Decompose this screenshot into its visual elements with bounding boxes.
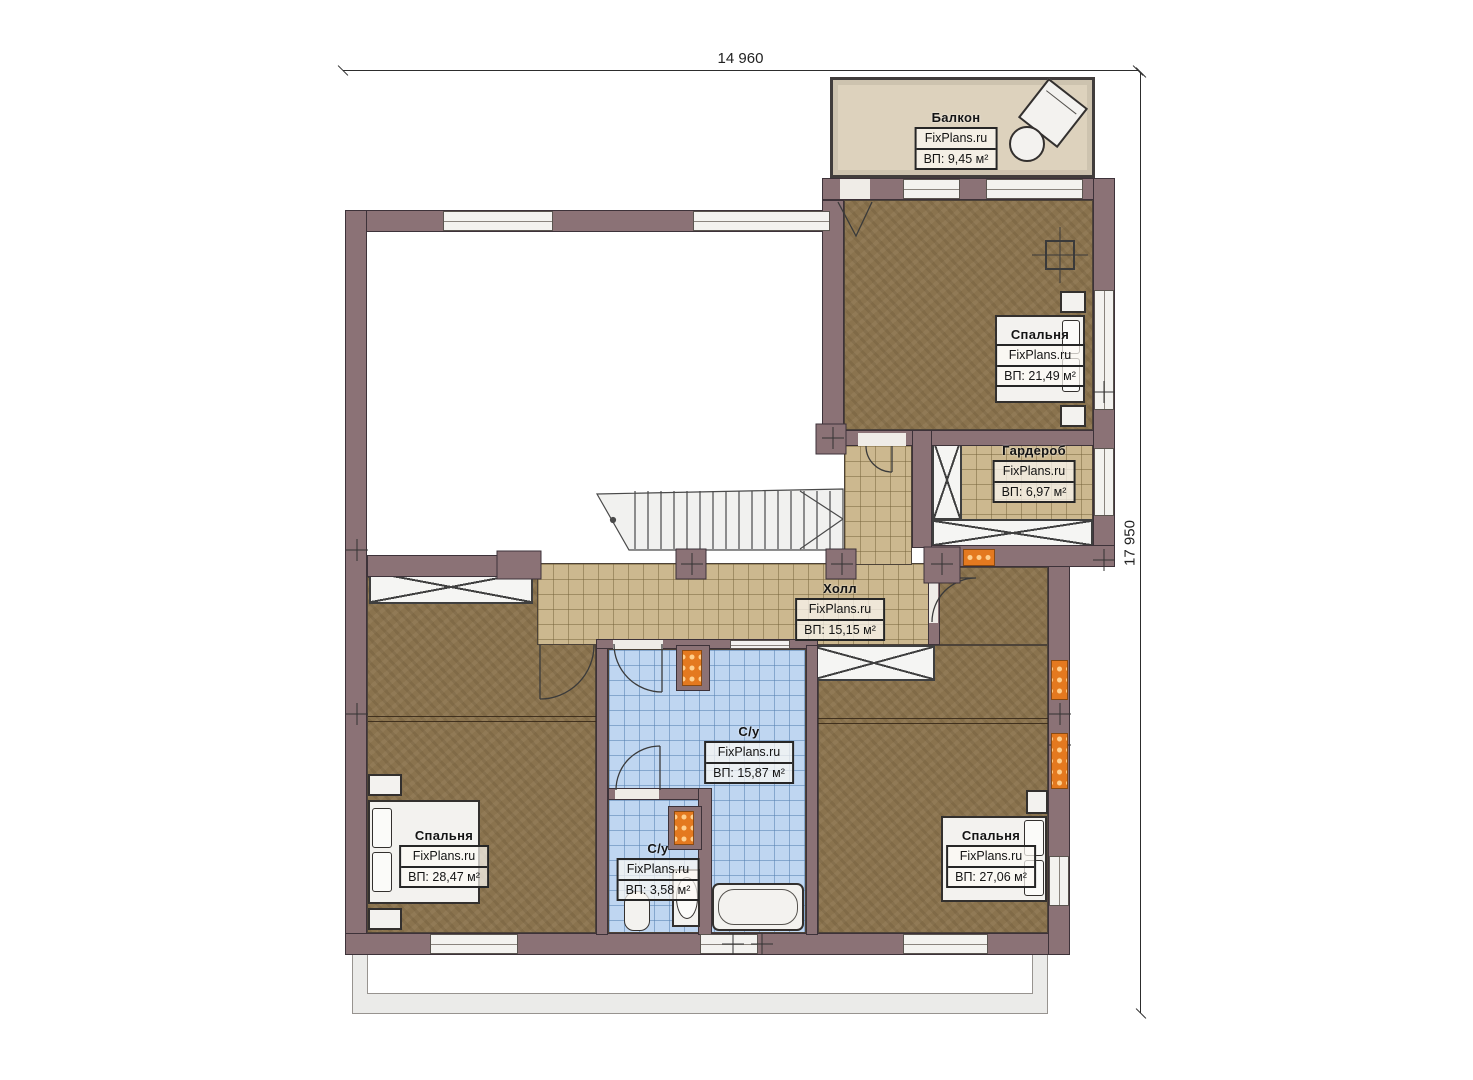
wall-segment [367,555,537,577]
interior-sill [730,640,790,649]
nightstand [1026,790,1048,814]
window [1094,448,1114,516]
stair-treads [635,491,830,549]
room-area: ВП: 15,15 м² [797,621,883,640]
dimension-label-right: 17 950 [1122,514,1139,572]
balcony-chair [1009,126,1045,162]
dimension-label-top: 14 960 [712,50,770,67]
room-area: ВП: 6,97 м² [995,483,1074,502]
brand-watermark: FixPlans.ru [995,462,1074,483]
door-opening [840,179,870,199]
room-name: Спальня [1011,327,1069,342]
hall-connector-floor [844,430,912,565]
door-opening [929,578,938,623]
radiator [1051,733,1068,789]
room-area: ВП: 28,47 м² [401,868,487,887]
floor-plan-canvas: 14 960 17 950 [0,0,1473,1080]
dimension-line-right: 17 950 [1140,73,1141,1013]
window [693,211,830,231]
nightstand [1060,291,1086,313]
dimension-tick [1136,1008,1147,1019]
radiator [674,811,694,845]
room-info-box: FixPlans.ru ВП: 27,06 м² [946,845,1036,888]
wall-segment [912,430,932,548]
door-opening [613,640,663,649]
brand-watermark: FixPlans.ru [619,860,698,881]
window [430,934,518,954]
room-info-box: FixPlans.ru ВП: 15,87 м² [704,741,794,784]
room-info-box: FixPlans.ru ВП: 15,15 м² [795,598,885,641]
room-area: ВП: 15,87 м² [706,764,792,783]
dimension-tick [1136,67,1147,78]
room-area: ВП: 3,58 м² [619,881,698,900]
door-opening [858,433,906,446]
room-area: ВП: 9,45 м² [917,150,996,169]
room-label-bedroom-tr: Спальня FixPlans.ru ВП: 21,49 м² [995,327,1085,387]
brand-watermark: FixPlans.ru [997,346,1083,367]
radiator [1051,660,1068,700]
room-name: Спальня [962,828,1020,843]
room-name: С/у [738,724,759,739]
ceiling-break-line [818,718,1048,724]
pillow [372,852,392,892]
dimension-line-top: 14 960 [343,70,1138,71]
bathtub [712,883,804,931]
room-info-box: FixPlans.ru ВП: 9,45 м² [915,127,998,170]
radiator [682,650,702,686]
bedroom-br-floor-upper [938,567,1048,645]
closet [932,440,962,520]
room-label-hall: Холл FixPlans.ru ВП: 15,15 м² [795,581,885,641]
room-name: Балкон [932,110,981,125]
brand-watermark: FixPlans.ru [797,600,883,621]
room-label-balcony: Балкон FixPlans.ru ВП: 9,45 м² [915,110,998,170]
wall-segment [806,645,818,935]
nightstand [368,908,402,930]
room-area: ВП: 27,06 м² [948,868,1034,887]
window [903,934,988,954]
window [986,179,1083,199]
staircase [597,489,843,550]
room-label-bathroom-main: С/у FixPlans.ru ВП: 15,87 м² [704,724,794,784]
room-info-box: FixPlans.ru ВП: 28,47 м² [399,845,489,888]
nightstand [1060,405,1086,427]
window [903,179,960,199]
nightstand [368,774,402,796]
brand-watermark: FixPlans.ru [401,847,487,868]
wall-segment [345,210,367,955]
room-name: Гардероб [1002,443,1066,458]
room-area: ВП: 21,49 м² [997,367,1083,386]
room-label-bedroom-bl: Спальня FixPlans.ru ВП: 28,47 м² [399,828,489,888]
window [1049,856,1069,906]
window [1094,290,1114,410]
room-info-box: FixPlans.ru ВП: 21,49 м² [995,344,1085,387]
radiator [963,549,995,566]
room-name: Спальня [415,828,473,843]
brand-watermark: FixPlans.ru [917,129,996,150]
pillow [372,808,392,848]
brand-watermark: FixPlans.ru [948,847,1034,868]
room-label-wardrobe: Гардероб FixPlans.ru ВП: 6,97 м² [993,443,1076,503]
closet [813,645,935,681]
wall-segment [822,200,844,426]
wall-segment [930,545,1115,567]
room-info-box: FixPlans.ru ВП: 6,97 м² [993,460,1076,503]
room-name: Холл [823,581,857,596]
closet [932,519,1093,547]
room-label-bathroom-small: С/у FixPlans.ru ВП: 3,58 м² [617,841,700,901]
brand-watermark: FixPlans.ru [706,743,792,764]
window [700,934,758,954]
room-name: С/у [647,841,668,856]
dimension-tick [338,65,349,76]
wall-segment [596,639,608,935]
ceiling-break-line [368,716,596,722]
room-label-bedroom-br: Спальня FixPlans.ru ВП: 27,06 м² [946,828,1036,888]
door-opening [615,789,659,799]
room-info-box: FixPlans.ru ВП: 3,58 м² [617,858,700,901]
window [443,211,553,231]
